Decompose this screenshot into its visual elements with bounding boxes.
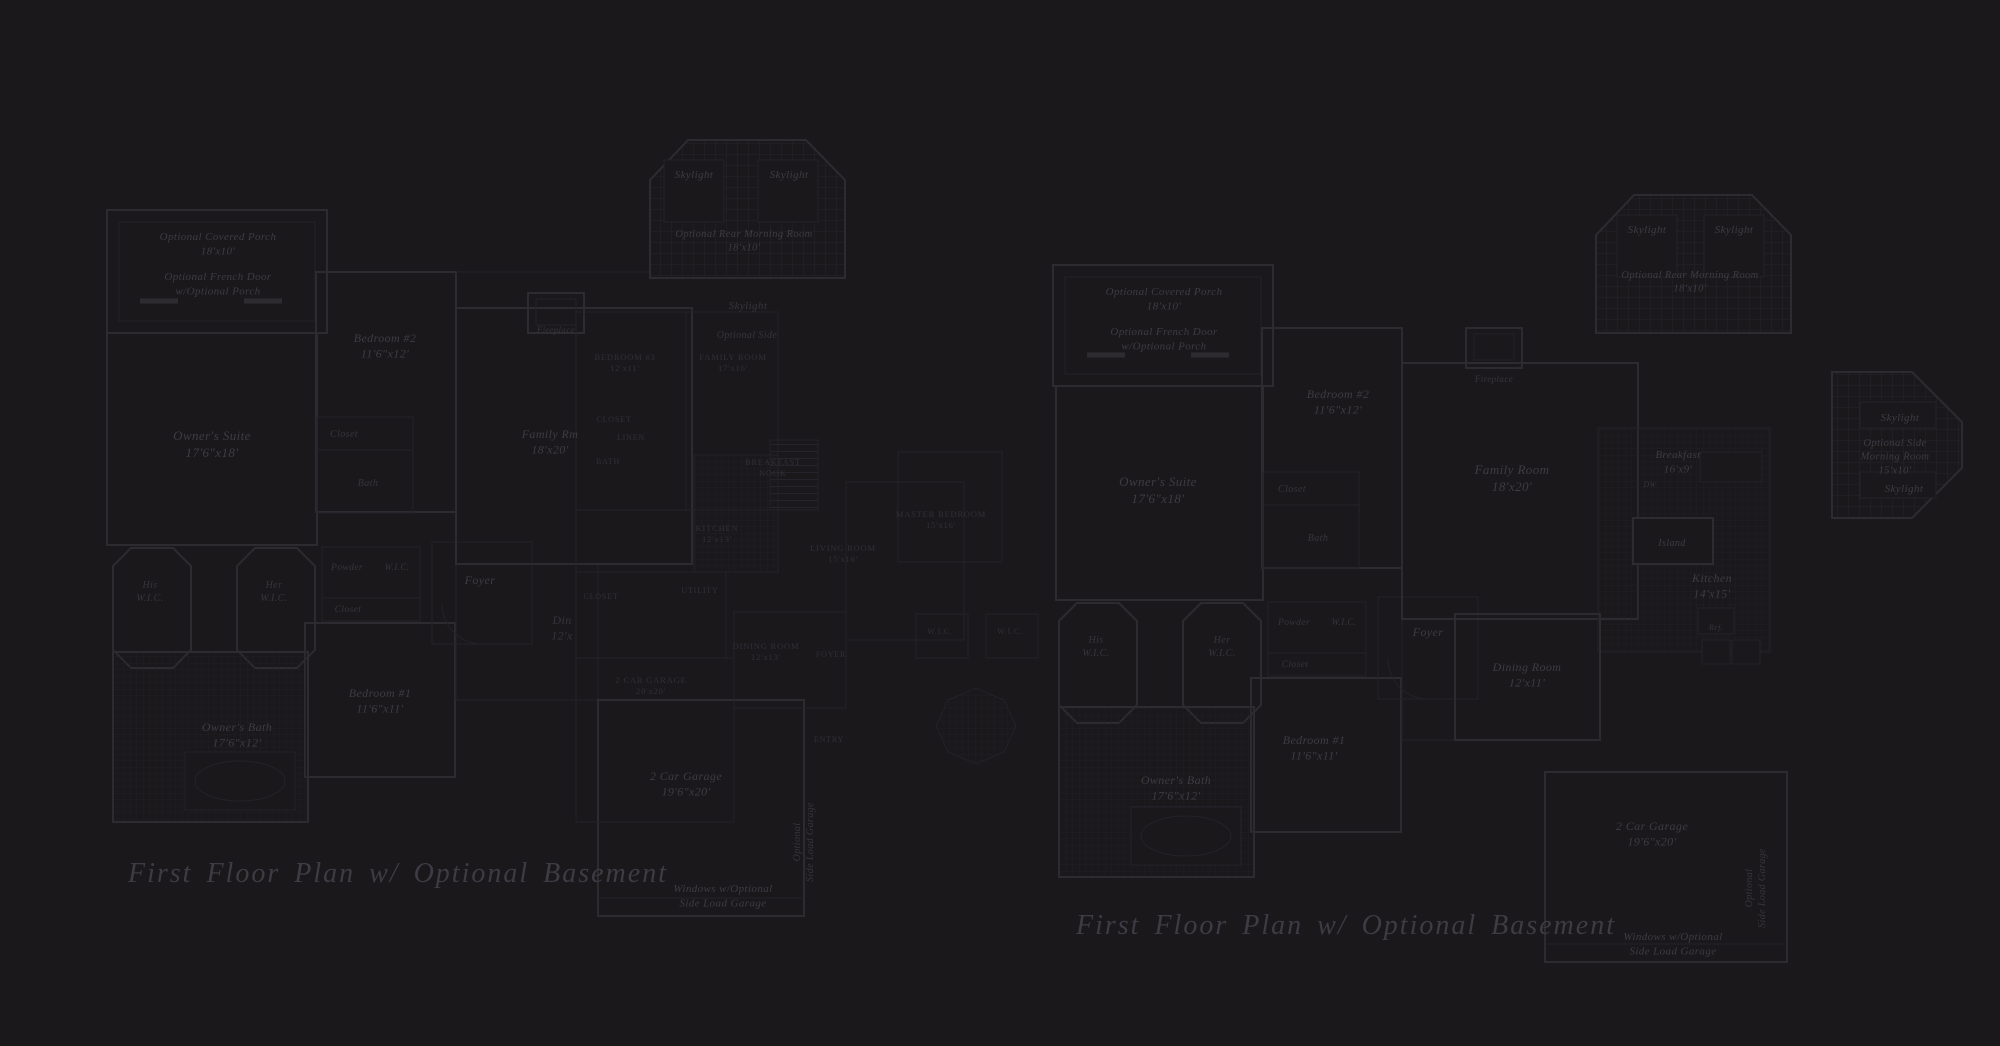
ov-closet-block xyxy=(576,510,694,572)
p1-powder-label: Powder xyxy=(330,563,363,573)
p2-bedroom1-label: Bedroom #111'6"x11' xyxy=(1283,733,1346,763)
p1-side-skylight-label-line-0: Skylight xyxy=(729,300,768,312)
p1-windows-label-line-0: Windows w/Optional xyxy=(673,883,772,895)
ov-dining-room-label-line-0: DINING ROOM xyxy=(733,641,800,651)
p2-dw-label: DW xyxy=(1642,480,1657,489)
p2-french-door-label: Optional French Doorw/Optional Porch xyxy=(1110,326,1218,352)
p1-powder-label-line-0: Powder xyxy=(330,563,363,573)
p1-bedroom1-label-line-0: Bedroom #1 xyxy=(349,686,412,700)
p2-dining-label-line-1: 12'x11' xyxy=(1509,676,1545,690)
p1-foyer-label: Foyer xyxy=(464,573,496,587)
p2-skylight-right-label-line-0: Skylight xyxy=(1715,224,1754,236)
p1-skylight-left-label: Skylight xyxy=(675,169,714,181)
p2-side-skylight-top-label-line-0: Skylight xyxy=(1881,412,1920,424)
p2-sideload-label-line-1: Side Load Garage xyxy=(1757,848,1768,928)
p1-closet2-label-line-0: Closet xyxy=(335,605,362,615)
p1-her-wic-label-line-1: W.I.C. xyxy=(260,593,287,604)
p1-foyer-label-line-0: Foyer xyxy=(464,573,496,587)
ov-closet-a-label-line-0: CLOSET xyxy=(596,415,631,424)
p2-bath-label: Bath xyxy=(1308,533,1329,544)
ov-bedroom3-label-line-0: BEDROOM #3 xyxy=(594,352,655,362)
p2-skylight-left-label: Skylight xyxy=(1628,224,1667,236)
p2-ref-label: Ref. xyxy=(1708,623,1723,632)
ov-garage-label-line-0: 2 CAR GARAGE xyxy=(616,675,687,685)
p2-bath-label-line-0: Bath xyxy=(1308,533,1329,544)
p1-his-wic-label-line-1: W.I.C. xyxy=(136,593,163,604)
plan2-title: First Floor Plan w/ Optional Basement xyxy=(1076,910,1616,942)
p1-sideload-label-line-0: Optional xyxy=(792,823,803,862)
plan1-title: First Floor Plan w/ Optional Basement xyxy=(128,858,668,890)
p1-garage-label-line-0: 2 Car Garage xyxy=(650,769,722,783)
p2-garage-label: 2 Car Garage19'6"x20' xyxy=(1616,819,1688,849)
p1-sideload-label-line-1: Side Load Garage xyxy=(805,802,816,882)
p1-french-door-label: Optional French Doorw/Optional Porch xyxy=(164,271,272,297)
ov-wic-a xyxy=(916,614,968,658)
p1-owners-suite-label-line-1: 17'6"x18' xyxy=(186,445,239,460)
p1-bedroom1-label: Bedroom #111'6"x11' xyxy=(349,686,412,716)
ov-family-room-label-line-0: FAMILY ROOM xyxy=(699,352,766,362)
p1-french-door-label-line-0: Optional French Door xyxy=(164,271,272,283)
p1-family-rm-label: Family Rm18'x20' xyxy=(521,427,579,457)
p2-closet2-label: Closet xyxy=(1282,660,1309,670)
ov-utility-label: UTILITY xyxy=(681,586,718,595)
p2-island-label: Island xyxy=(1657,538,1686,549)
p2-family-room-label: Family Room18'x20' xyxy=(1474,462,1550,494)
p2-wic-label: W.I.C. xyxy=(1332,617,1357,627)
ov-bath-label-line-0: BATH xyxy=(596,457,620,466)
p2-side-morning-label-line-1: Morning Room xyxy=(1860,452,1930,463)
p1-her-wic xyxy=(237,548,315,668)
p2-closet-label-line-0: Closet xyxy=(1278,484,1306,495)
ov-foyer-label: FOYER xyxy=(816,650,846,659)
p2-bedroom2-label-line-0: Bedroom #2 xyxy=(1307,387,1370,401)
ov-family-room-label-line-1: 17'x16' xyxy=(718,363,748,373)
p2-side-skylight-bottom-label: Skylight xyxy=(1885,483,1924,495)
p2-sideload-label: OptionalSide Load Garage xyxy=(1744,848,1768,928)
ov-living-room-label-line-0: LIVING ROOM xyxy=(810,543,876,553)
p2-his-wic-label-line-0: His xyxy=(1087,635,1103,646)
p2-garage-label-line-0: 2 Car Garage xyxy=(1616,819,1688,833)
p2-owners-suite-label-line-0: Owner's Suite xyxy=(1119,474,1197,489)
p2-powder-label: Powder xyxy=(1277,618,1310,628)
p2-owners-suite-label-line-1: 17'6"x18' xyxy=(1132,491,1185,506)
ov-living-room-label: LIVING ROOM15'x16' xyxy=(810,543,876,564)
p1-foyer xyxy=(432,542,532,644)
p1-family-rm-label-line-1: 18'x20' xyxy=(531,443,568,457)
ov-closet-b-label: CLOSET xyxy=(583,592,618,601)
p2-closet2-label-line-0: Closet xyxy=(1282,660,1309,670)
p1-owners-suite-label-line-0: Owner's Suite xyxy=(173,428,251,443)
ov-bay xyxy=(936,688,1016,764)
p2-her-wic-label: HerW.I.C. xyxy=(1208,635,1235,659)
ov-kitchen-label-line-0: KITCHEN xyxy=(696,523,739,533)
p1-optional-side-label: Optional Side xyxy=(717,330,778,341)
p2-porch-label-line-0: Optional Covered Porch xyxy=(1106,286,1223,298)
ov-breakfast-nook-label-line-1: NOOK xyxy=(759,468,787,478)
ov-linen-label-line-0: LINEN xyxy=(617,433,645,442)
p2-owners-bath-label-line-1: 17'6"x12' xyxy=(1151,789,1200,803)
p2-french-door-label-line-1: w/Optional Porch xyxy=(1121,340,1206,352)
p1-garage-label-line-1: 19'6"x20' xyxy=(661,785,710,799)
p1-dining-label-line-0: Din xyxy=(551,613,571,627)
ov-bath-label: BATH xyxy=(596,457,620,466)
p1-his-wic xyxy=(113,548,191,668)
ov-wic-a-label: W.I.C. xyxy=(927,627,953,636)
ov-master-bedroom-label: MASTER BEDROOM15'x16' xyxy=(896,509,986,530)
p2-wic-label-line-0: W.I.C. xyxy=(1332,617,1357,627)
p2-french-door-label-line-0: Optional French Door xyxy=(1110,326,1218,338)
p1-her-wic-label: HerW.I.C. xyxy=(260,580,287,604)
p2-foyer xyxy=(1378,597,1478,699)
p2-powder-label-line-0: Powder xyxy=(1277,618,1310,628)
p2-his-wic-label-line-1: W.I.C. xyxy=(1082,648,1109,659)
p1-porch-label-line-0: Optional Covered Porch xyxy=(160,231,277,243)
p2-bedroom1-label-line-1: 11'6"x11' xyxy=(1290,749,1337,763)
p2-bedroom1-label-line-0: Bedroom #1 xyxy=(1283,733,1346,747)
p1-porch-label-line-1: 18'x10' xyxy=(201,245,236,257)
p1-closet-label: Closet xyxy=(330,429,358,440)
p2-foyer-label-line-0: Foyer xyxy=(1412,625,1444,639)
p2-wd-box-b xyxy=(1732,640,1760,664)
ov-dining-room-label: DINING ROOM12'x13' xyxy=(733,641,800,662)
p2-windows-label-line-1: Side Load Garage xyxy=(1629,945,1716,957)
p1-bedroom2-label-line-1: 11'6"x12' xyxy=(361,347,409,361)
p1-windows-label: Windows w/OptionalSide Load Garage xyxy=(673,883,772,909)
p1-his-wic-label-line-0: His xyxy=(141,580,157,591)
ov-wic-b xyxy=(986,614,1038,658)
ov-utility-label-line-0: UTILITY xyxy=(681,586,718,595)
p1-optional-side-label-line-0: Optional Side xyxy=(717,330,778,341)
p2-side-morning-label-line-0: Optional Side xyxy=(1863,438,1926,449)
p1-fireplace-inner xyxy=(536,299,576,325)
p2-bedroom2 xyxy=(1262,328,1402,568)
p2-side-morning-label-line-2: 15'x10' xyxy=(1879,465,1912,476)
p2-family-room-label-line-0: Family Room xyxy=(1474,462,1550,477)
p1-owners-suite-label: Owner's Suite17'6"x18' xyxy=(173,428,251,460)
p1-closet2-label: Closet xyxy=(335,605,362,615)
p1-fireplace-label: Fireplace xyxy=(536,325,575,335)
p1-windows-label-line-1: Side Load Garage xyxy=(679,897,766,909)
ov-bedroom3-label-line-1: 12'x11' xyxy=(610,363,640,373)
floor-plan-sheet: Optional Covered Porch18'x10'Optional Fr… xyxy=(0,0,2000,1046)
p2-owners-suite-label: Owner's Suite17'6"x18' xyxy=(1119,474,1197,506)
ov-garage-label: 2 CAR GARAGE20'x20' xyxy=(616,675,687,696)
p1-family-rm-label-line-0: Family Rm xyxy=(521,427,579,441)
p1-his-wic-label: HisW.I.C. xyxy=(136,580,163,604)
p2-dining-label-line-0: Dining Room xyxy=(1492,660,1562,674)
p1-bedroom2 xyxy=(316,272,456,512)
p2-breakfast-label-line-1: 16'x9' xyxy=(1664,463,1693,475)
ov-linen-label: LINEN xyxy=(617,433,645,442)
p2-foyer-label: Foyer xyxy=(1412,625,1444,639)
p2-bedroom2-label-line-1: 11'6"x12' xyxy=(1314,403,1362,417)
p2-fireplace-label-line-0: Fireplace xyxy=(1474,374,1513,384)
p1-bedroom2-label-line-0: Bedroom #2 xyxy=(354,331,417,345)
ov-closet-a-label: CLOSET xyxy=(596,415,631,424)
p1-closet-label-line-0: Closet xyxy=(330,429,358,440)
p1-bedroom1 xyxy=(305,623,455,777)
p1-wc-label: W.I.C. xyxy=(385,562,410,572)
p1-owners-bath-label-line-1: 17'6"x12' xyxy=(212,736,261,750)
ov-kitchen-label-line-1: 12'x13' xyxy=(702,534,732,544)
p2-counter xyxy=(1700,452,1762,482)
ov-dining-room-label-line-1: 12'x13' xyxy=(751,652,781,662)
p2-her-wic-label-line-0: Her xyxy=(1213,635,1231,646)
ov-wic-b-label-line-0: W.I.C. xyxy=(997,627,1023,636)
p1-bath-label-line-0: Bath xyxy=(358,478,379,489)
p2-kitchen-label-line-0: Kitchen xyxy=(1691,571,1732,585)
p2-side-skylight-bottom-label-line-0: Skylight xyxy=(1885,483,1924,495)
ov-wic-a-label-line-0: W.I.C. xyxy=(927,627,953,636)
p1-morning-room-label-line-0: Optional Rear Morning Room xyxy=(675,229,812,240)
ov-master xyxy=(898,452,1002,562)
p2-porch-label: Optional Covered Porch18'x10' xyxy=(1106,286,1223,312)
p2-skylight-left-label-line-0: Skylight xyxy=(1628,224,1667,236)
p1-skylight-left-label-line-0: Skylight xyxy=(675,169,714,181)
p2-wd-box-a xyxy=(1702,640,1730,664)
ov-living-room-label-line-1: 15'x16' xyxy=(828,554,858,564)
p2-kitchen-label: Kitchen14'x15' xyxy=(1691,571,1732,601)
p2-kitchen-label-line-1: 14'x15' xyxy=(1693,587,1730,601)
p1-bedroom2-label: Bedroom #211'6"x12' xyxy=(354,331,417,361)
p1-dining-label: Din12'x xyxy=(551,613,573,643)
ov-family-room-label: FAMILY ROOM17'x16' xyxy=(699,352,766,373)
ov-closet-b-label-line-0: CLOSET xyxy=(583,592,618,601)
p2-dining-label: Dining Room12'x11' xyxy=(1492,660,1562,690)
p2-sideload-label-line-0: Optional xyxy=(1744,869,1755,908)
p2-her-wic-label-line-1: W.I.C. xyxy=(1208,648,1235,659)
p2-his-wic xyxy=(1059,603,1137,723)
p1-her-wic-label-line-0: Her xyxy=(265,580,283,591)
p1-owners-bath-label-line-0: Owner's Bath xyxy=(202,720,272,734)
ov-foyer-label-line-0: FOYER xyxy=(816,650,846,659)
ov-wic-b-label: W.I.C. xyxy=(997,627,1023,636)
p2-breakfast-label-line-0: Breakfast xyxy=(1655,449,1701,461)
p1-porch-label: Optional Covered Porch18'x10' xyxy=(160,231,277,257)
p2-garage-label-line-1: 19'6"x20' xyxy=(1627,835,1676,849)
p1-dining-label-line-1: 12'x xyxy=(551,629,573,643)
p2-his-wic-label: HisW.I.C. xyxy=(1082,635,1109,659)
p2-fireplace-label: Fireplace xyxy=(1474,374,1513,384)
p1-french-door-label-line-1: w/Optional Porch xyxy=(175,285,260,297)
ov-bedroom3 xyxy=(576,312,686,510)
p2-windows-label-line-0: Windows w/Optional xyxy=(1623,931,1722,943)
p2-fireplace-inner xyxy=(1474,334,1514,360)
p2-dw-label-line-0: DW xyxy=(1642,480,1657,489)
p1-garage-label: 2 Car Garage19'6"x20' xyxy=(650,769,722,799)
p2-side-skylight-top-label: Skylight xyxy=(1881,412,1920,424)
p1-bedroom1-label-line-1: 11'6"x11' xyxy=(356,702,403,716)
ov-bedroom3-label: BEDROOM #312'x11' xyxy=(594,352,655,373)
p2-owners-bath-label-line-0: Owner's Bath xyxy=(1141,773,1211,787)
ov-entry-label: ENTRY xyxy=(814,735,844,744)
p2-family-room-label-line-1: 18'x20' xyxy=(1492,479,1532,494)
ov-entry-label-line-0: ENTRY xyxy=(814,735,844,744)
p2-closet-label: Closet xyxy=(1278,484,1306,495)
p2-morning-room-label-line-1: 18'x10' xyxy=(1674,284,1707,295)
ov-master-bedroom-label-line-1: 15'x16' xyxy=(926,520,956,530)
p1-side-skylight-label: Skylight xyxy=(729,300,768,312)
ov-master-bedroom-label-line-0: MASTER BEDROOM xyxy=(896,509,986,519)
p1-fireplace-label-line-0: Fireplace xyxy=(536,325,575,335)
ov-breakfast-nook-label-line-0: BREAKFAST xyxy=(745,457,801,467)
p2-ref-label-line-0: Ref. xyxy=(1708,623,1723,632)
wall-layer xyxy=(107,140,1962,962)
ov-garage-label-line-1: 20'x20' xyxy=(636,686,666,696)
p2-skylight-right-label: Skylight xyxy=(1715,224,1754,236)
p2-her-wic xyxy=(1183,603,1261,723)
p1-bath-label: Bath xyxy=(358,478,379,489)
p1-wc-label-line-0: W.I.C. xyxy=(385,562,410,572)
p2-island-label-line-0: Island xyxy=(1657,538,1686,549)
p2-porch-label-line-1: 18'x10' xyxy=(1147,300,1182,312)
p2-morning-room-label-line-0: Optional Rear Morning Room xyxy=(1621,270,1758,281)
p1-skylight-right-label-line-0: Skylight xyxy=(770,169,809,181)
p1-skylight-right-label: Skylight xyxy=(770,169,809,181)
p2-bedroom2-label: Bedroom #211'6"x12' xyxy=(1307,387,1370,417)
ov-living xyxy=(846,482,964,640)
p1-morning-room-label-line-1: 18'x10' xyxy=(728,243,761,254)
